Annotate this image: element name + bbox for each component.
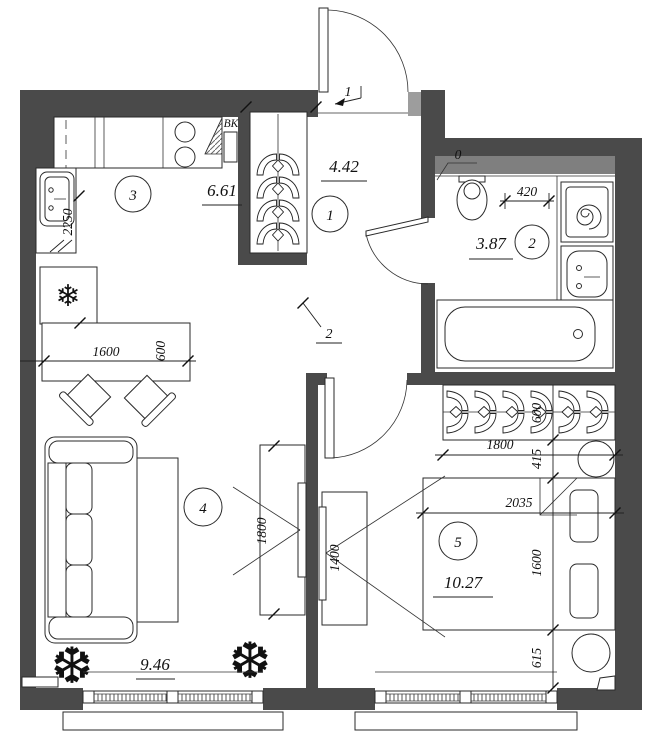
- tv-living-icon: [298, 483, 306, 577]
- stool-icon: [578, 441, 614, 477]
- dim-tick: [269, 609, 280, 620]
- room-area-living: 9.46: [140, 655, 170, 674]
- fridge-snowflake-icon: ❄: [55, 279, 80, 314]
- dim-table-depth: 600: [153, 341, 168, 362]
- vent-duct-box: [224, 132, 237, 162]
- window-post: [375, 691, 386, 703]
- window-post: [460, 691, 471, 703]
- room-area-bathroom: 3.87: [475, 234, 507, 253]
- bedroom-door-swing: [330, 380, 407, 458]
- kitchen-counter: [54, 117, 222, 168]
- corner-notch: [597, 676, 615, 690]
- bathroom: [437, 176, 613, 368]
- wall-bottom-2: [263, 688, 375, 710]
- floor-plan-canvas: ❄: [0, 0, 657, 736]
- dim-tick: [269, 441, 280, 452]
- dim-table-length: 1600: [93, 344, 120, 359]
- window-outer-sill: [63, 712, 283, 730]
- bedroom-door-leaf: [325, 378, 334, 458]
- entrance-door-swing: [328, 10, 408, 92]
- window-outer-sill: [355, 712, 577, 730]
- window-glazing: [178, 694, 252, 701]
- dim-tick: [298, 298, 309, 309]
- dim-wardrobe-depth: 600: [529, 403, 544, 424]
- bath-sink-icon: [561, 246, 613, 302]
- bathroom-door-leaf: [366, 217, 428, 236]
- dim-bath-gap: 420: [517, 184, 538, 199]
- threshold-label: 0: [455, 147, 462, 162]
- bedroom-wall-stub-right: [407, 373, 421, 385]
- window-post: [252, 691, 263, 703]
- sofa-icon: [45, 437, 137, 643]
- hallway-wardrobe: [250, 112, 307, 253]
- room-number-kitchen: 3: [128, 188, 137, 204]
- room-area-kitchen: 6.61: [207, 181, 237, 200]
- entrance-jamb: [408, 92, 421, 116]
- toilet-icon: [457, 180, 487, 220]
- wardrobe-wall-strip: [238, 112, 250, 253]
- stool-icon: [572, 634, 610, 672]
- plant-icon: ❆: [229, 632, 271, 690]
- bathroom-wall-upper: [421, 156, 435, 218]
- partition-living-bedroom: [306, 373, 318, 700]
- room-number-hallway: 1: [326, 208, 334, 224]
- room-number-bathroom: 2: [528, 236, 536, 252]
- washing-machine-icon: [561, 182, 613, 242]
- dim-living-tv: 1800: [254, 517, 269, 544]
- mark-leader: [303, 303, 321, 327]
- doors: [319, 8, 428, 458]
- bathroom-shaft: [435, 156, 615, 174]
- room-number-bedroom: 5: [454, 535, 462, 551]
- window-glazing: [471, 694, 546, 701]
- dim-bed-width: 2035: [506, 495, 533, 510]
- window-glazing: [94, 694, 167, 701]
- bathroom-wall-bottom: [421, 372, 615, 385]
- mark-arrow: [335, 98, 345, 106]
- dim-gap-615: 615: [529, 648, 544, 669]
- bedroom: [319, 385, 615, 690]
- bathroom-door-swing: [366, 234, 428, 284]
- window-post: [83, 691, 94, 703]
- door-mark-2: 2: [326, 327, 333, 342]
- wardrobe-wall-stub: [238, 253, 307, 265]
- tv-bedroom-icon: [319, 507, 326, 600]
- dim-wardrobe-length: 1800: [487, 437, 514, 452]
- dim-bed-length: 1600: [529, 549, 544, 576]
- room-number-living: 4: [199, 501, 207, 517]
- living-room: ❆ ❆: [22, 323, 306, 695]
- wall-right: [615, 156, 642, 710]
- dim-kitchen-counter: 2250: [60, 208, 75, 235]
- dim-gap-415: 415: [529, 449, 544, 470]
- entrance-door-leaf: [319, 8, 328, 92]
- vent-duct-label: ВК: [224, 118, 240, 130]
- room-area-hallway: 4.42: [329, 157, 359, 176]
- wall-bottom-3: [557, 688, 642, 710]
- wall-left-lower: [20, 170, 36, 710]
- wall-niche: [22, 677, 58, 687]
- wall-top-right-block: [421, 90, 445, 138]
- window-post: [167, 691, 178, 703]
- dim-bedroom-tv: 1400: [327, 544, 342, 571]
- bathroom-wall-lower: [421, 283, 435, 372]
- door-mark-1: 1: [345, 85, 352, 100]
- room-area-bedroom: 10.27: [444, 573, 484, 592]
- floor-plan-svg: ❄: [0, 0, 657, 736]
- window-glazing: [386, 694, 460, 701]
